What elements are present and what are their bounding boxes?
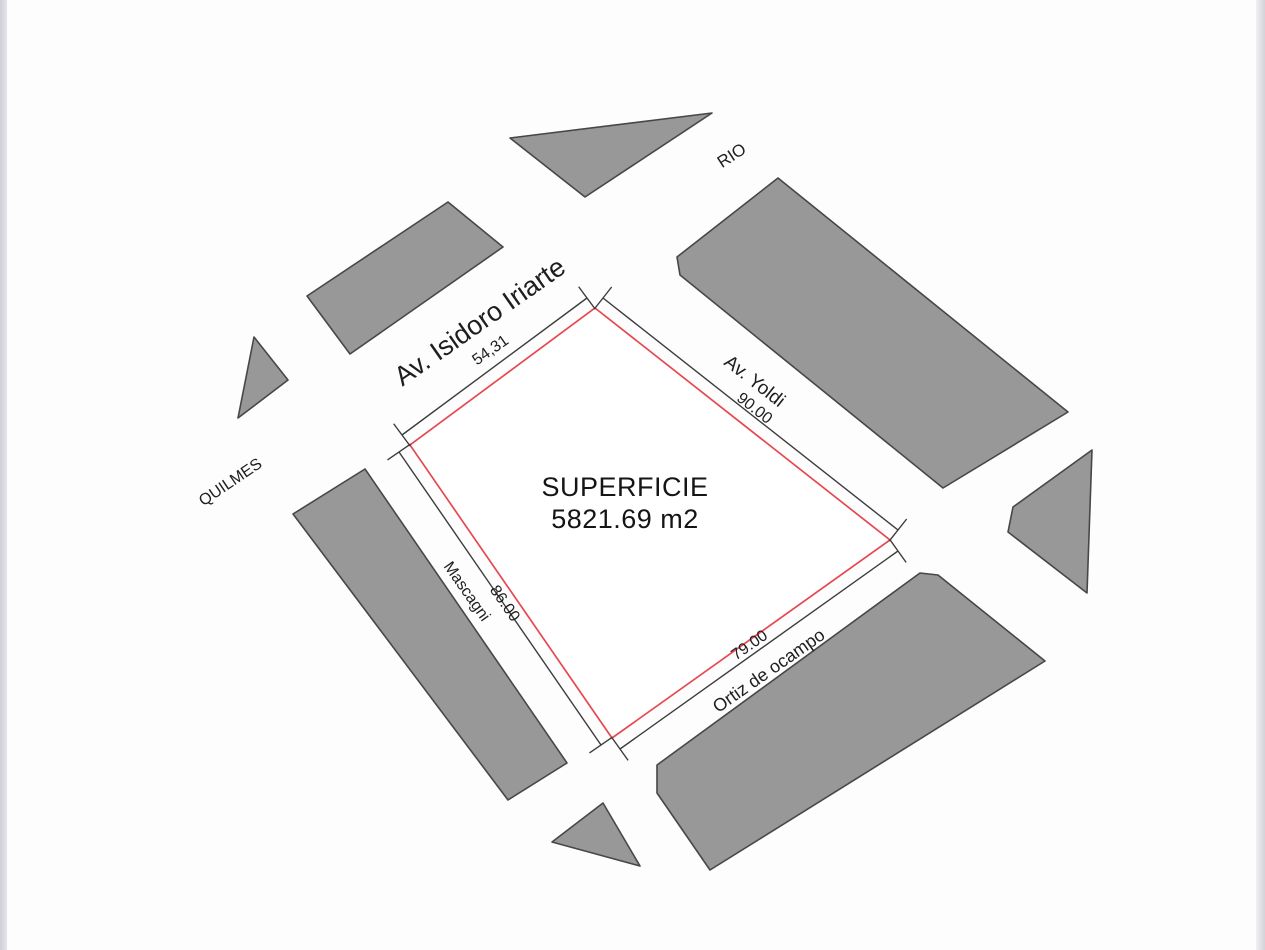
survey-plan-page: RIOAv. Isidoro Iriarte54,31Av. Yoldi90.0… xyxy=(0,0,1265,950)
dim-line-54-31-tick-start xyxy=(579,287,596,310)
page-edge-shadow-right xyxy=(1256,0,1265,950)
block-triangle-south xyxy=(552,803,640,866)
dim-line-90-00-tick-end xyxy=(889,519,906,541)
page-edge-shadow-left xyxy=(0,0,7,950)
dim-line-79-00-tick-end xyxy=(612,738,628,761)
dim-line-86-00-tick-end xyxy=(589,737,612,753)
dim-line-79-00-tick-start xyxy=(890,540,906,563)
survey-plan-drawing xyxy=(0,0,1265,950)
dim-line-90-00-tick-start xyxy=(594,287,611,309)
dim-line-54-31-tick-end xyxy=(394,424,411,447)
block-east-small xyxy=(1008,450,1092,593)
block-triangle-north xyxy=(510,113,712,197)
block-triangle-west xyxy=(238,337,288,418)
block-isidoro-north xyxy=(307,202,503,354)
dim-line-86-00-tick-start xyxy=(387,444,410,460)
